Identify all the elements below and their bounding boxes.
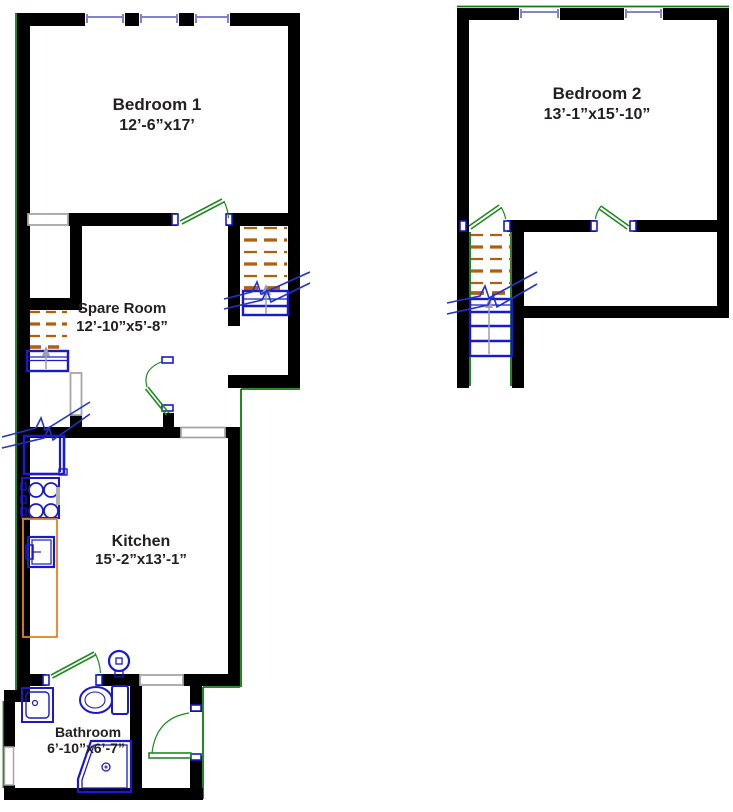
door-bedroom-2-right — [591, 206, 636, 231]
room-label-kitchen: Kitchen 15’-2”x13’-1” — [95, 533, 187, 568]
room-name: Bedroom 2 — [553, 84, 642, 103]
floor-plan-drawing: Bedroom 1 12’-6”x17’ Spare Room 12’-10”x… — [0, 0, 733, 812]
left-unit-plan: Bedroom 1 12’-6”x17’ Spare Room 12’-10”x… — [2, 13, 310, 800]
window — [626, 9, 661, 18]
cased-opening — [181, 428, 225, 438]
cased-opening — [28, 214, 68, 225]
right-unit-walls — [457, 8, 729, 388]
door-bathroom — [43, 652, 102, 685]
room-name: Bathroom — [55, 724, 121, 740]
room-label-bathroom: Bathroom 6’-10”x6’-7” — [47, 724, 125, 756]
bathroom-sink — [22, 688, 53, 722]
door-entry — [149, 705, 201, 760]
room-label-spare-room: Spare Room 12’-10”x5’-8” — [76, 300, 168, 335]
floor-plan-canvas: Bedroom 1 12’-6”x17’ Spare Room 12’-10”x… — [0, 0, 733, 812]
kitchen-sink — [26, 537, 54, 567]
room-label-bedroom-1: Bedroom 1 12’-6”x17’ — [113, 95, 202, 134]
room-dimensions: 15’-2”x13’-1” — [95, 551, 187, 568]
right-unit-plan: Bedroom 2 13’-1”x15’-10” — [447, 7, 729, 389]
cased-opening — [140, 675, 183, 685]
room-dimensions: 13’-1”x15’-10” — [544, 106, 651, 123]
window — [141, 14, 177, 23]
bedroom-1-windows — [87, 14, 228, 23]
window — [196, 14, 228, 23]
window — [521, 9, 558, 18]
window — [87, 14, 123, 23]
toilet — [80, 686, 128, 714]
room-dimensions: 12’-6”x17’ — [119, 117, 195, 134]
stairs-up-dashed — [30, 312, 67, 347]
door-bedroom-1 — [172, 199, 232, 225]
stove-handle — [56, 487, 60, 505]
door-spare-room — [146, 357, 174, 415]
room-name: Kitchen — [112, 533, 171, 550]
room-label-bedroom-2: Bedroom 2 13’-1”x15’-10” — [544, 84, 651, 123]
floor-drain-fixture — [109, 651, 129, 677]
stairs-up-dashed — [471, 235, 511, 293]
room-name: Spare Room — [78, 300, 166, 317]
bathroom-window — [5, 747, 14, 785]
stairs-up-dashed — [244, 228, 287, 288]
room-name: Bedroom 1 — [113, 95, 202, 114]
room-dimensions: 6’-10”x6’-7” — [47, 740, 125, 756]
right-unit-exterior-outline — [457, 7, 729, 387]
room-dimensions: 12’-10”x5’-8” — [76, 318, 168, 335]
